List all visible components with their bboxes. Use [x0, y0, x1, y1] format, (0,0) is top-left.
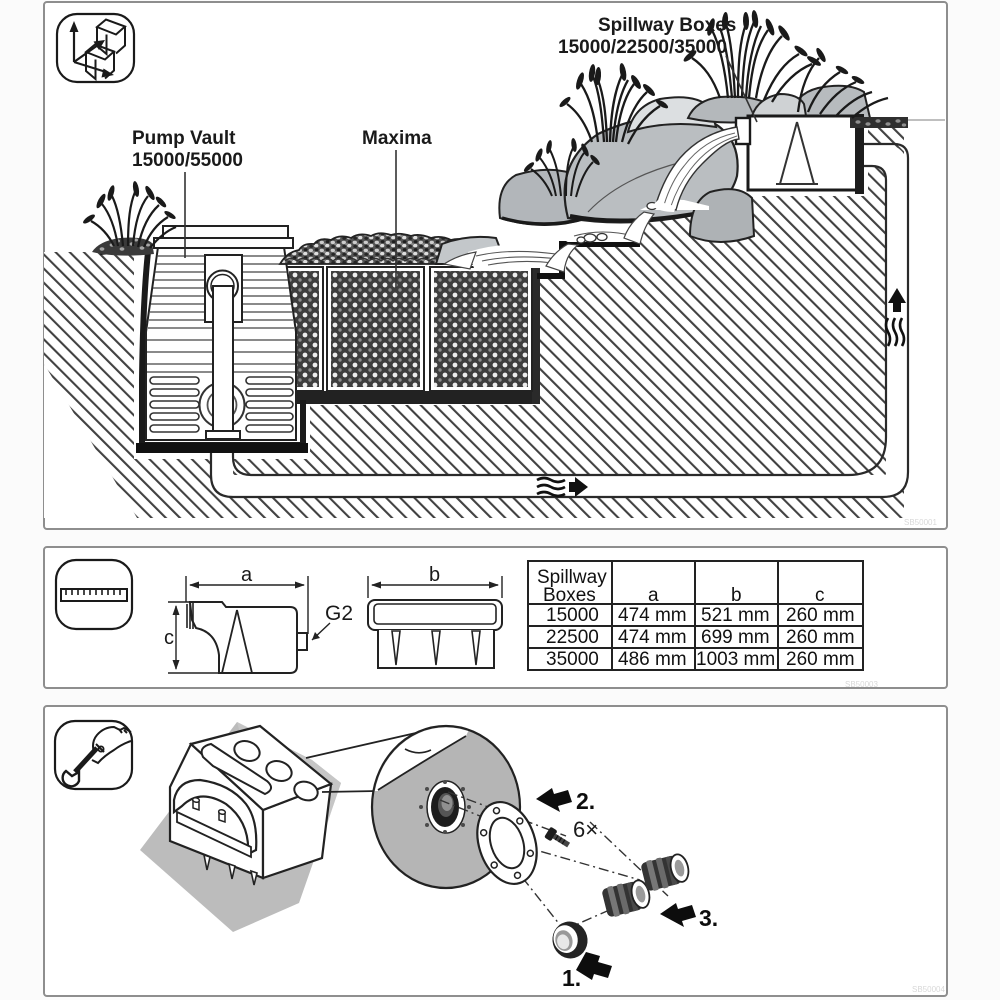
svg-text:699 mm: 699 mm [701, 627, 770, 648]
svg-text:Spillway Boxes: Spillway Boxes [598, 15, 736, 36]
svg-text:22500: 22500 [546, 627, 599, 648]
svg-text:b: b [731, 585, 742, 606]
svg-text:35000: 35000 [546, 649, 599, 670]
svg-text:c: c [164, 627, 174, 649]
svg-text:G2: G2 [325, 602, 353, 625]
svg-text:2.: 2. [576, 788, 595, 814]
svg-text:6×: 6× [573, 817, 598, 842]
svg-text:1003 mm: 1003 mm [696, 649, 775, 670]
svg-text:SB50001: SB50001 [904, 518, 937, 527]
svg-text:260 mm: 260 mm [786, 649, 855, 670]
svg-text:15000/22500/35000: 15000/22500/35000 [558, 37, 727, 58]
svg-text:521 mm: 521 mm [701, 605, 770, 626]
svg-text:15000/55000: 15000/55000 [132, 150, 243, 171]
svg-text:15000: 15000 [546, 605, 599, 626]
svg-text:SB50003: SB50003 [845, 680, 878, 689]
svg-text:1.: 1. [562, 965, 581, 991]
svg-text:c: c [815, 585, 825, 606]
svg-text:Pump Vault: Pump Vault [132, 128, 236, 149]
svg-text:Boxes: Boxes [543, 585, 596, 606]
svg-text:3.: 3. [699, 905, 718, 931]
svg-text:260 mm: 260 mm [786, 627, 855, 648]
svg-text:Maxima: Maxima [362, 128, 432, 149]
svg-text:b: b [429, 564, 440, 586]
svg-text:SB50004: SB50004 [912, 985, 945, 994]
svg-text:474 mm: 474 mm [618, 605, 687, 626]
svg-text:486 mm: 486 mm [618, 649, 687, 670]
svg-text:260 mm: 260 mm [786, 605, 855, 626]
svg-text:a: a [648, 585, 659, 606]
svg-text:474 mm: 474 mm [618, 627, 687, 648]
svg-text:a: a [241, 564, 253, 586]
